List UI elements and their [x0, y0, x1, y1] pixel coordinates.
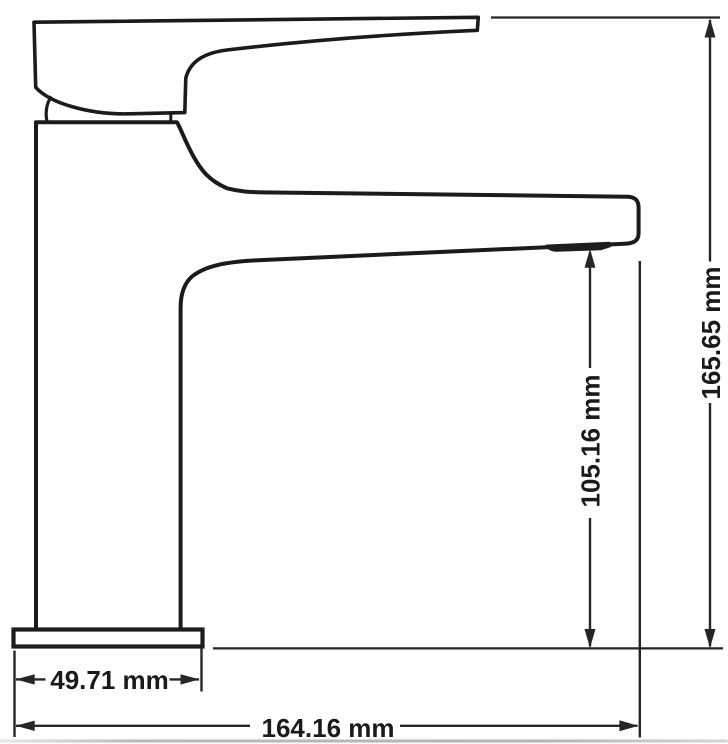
- svg-text:105.16 mm: 105.16 mm: [575, 375, 605, 508]
- svg-text:165.65 mm: 165.65 mm: [696, 267, 726, 400]
- svg-text:49.71 mm: 49.71 mm: [50, 665, 169, 695]
- svg-text:164.16 mm: 164.16 mm: [262, 713, 395, 743]
